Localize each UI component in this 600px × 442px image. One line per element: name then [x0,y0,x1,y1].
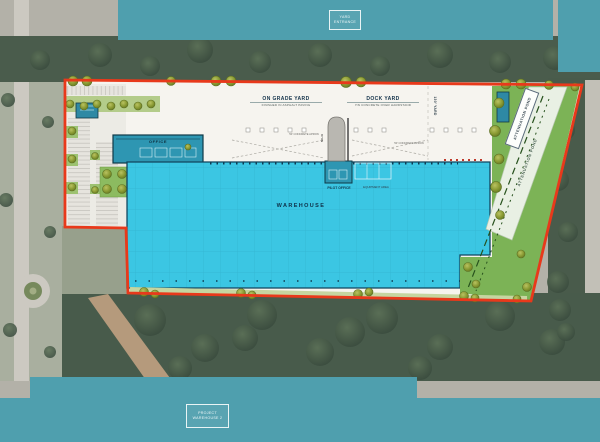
warehouse-label: WAREHOUSE [259,203,343,210]
top-location-tag: YARD ENTRANCE [329,10,361,30]
site-plan-screenshot: ON GRADE YARD FINISHED IN ASPHALT PAVING… [0,0,600,442]
pilot-office-label: PILOT OFFICE [322,186,356,190]
warehouse-building [127,160,490,288]
apron-note-right: 50' CONCRETE APRON [385,142,433,145]
bottom-tag-line2: WAREHOUSE 2 [187,416,228,421]
on-grade-yard-label: ON GRADE YARD FINISHED IN ASPHALT PAVING [250,96,322,107]
apron-note-left: 50' CONCRETE APRON [280,133,328,136]
on-grade-yard-subtitle: FINISHED IN ASPHALT PAVING [250,102,322,107]
dock-yard-subtitle: 7IN CONCRETE OVER HARDSTAND [347,102,419,107]
site-plan-drawing [0,0,600,442]
redaction-bottom-bar [30,377,417,400]
roundabout [16,274,50,308]
silo-label: SILO [320,124,324,152]
redaction-bottom-block [0,398,600,442]
redaction-top-right-block [558,0,600,72]
bottom-location-tag: PROJECT WAREHOUSE 2 [186,404,229,428]
yard-depth-dimension: 130' YARD [433,91,437,121]
dock-yard-label: DOCK YARD 7IN CONCRETE OVER HARDSTAND [347,96,419,107]
equipment-area-label: EQUIPMENT AREA [352,186,400,189]
top-tag-line2: ENTRANCE [330,20,360,25]
office-label: OFFICE [138,140,178,145]
